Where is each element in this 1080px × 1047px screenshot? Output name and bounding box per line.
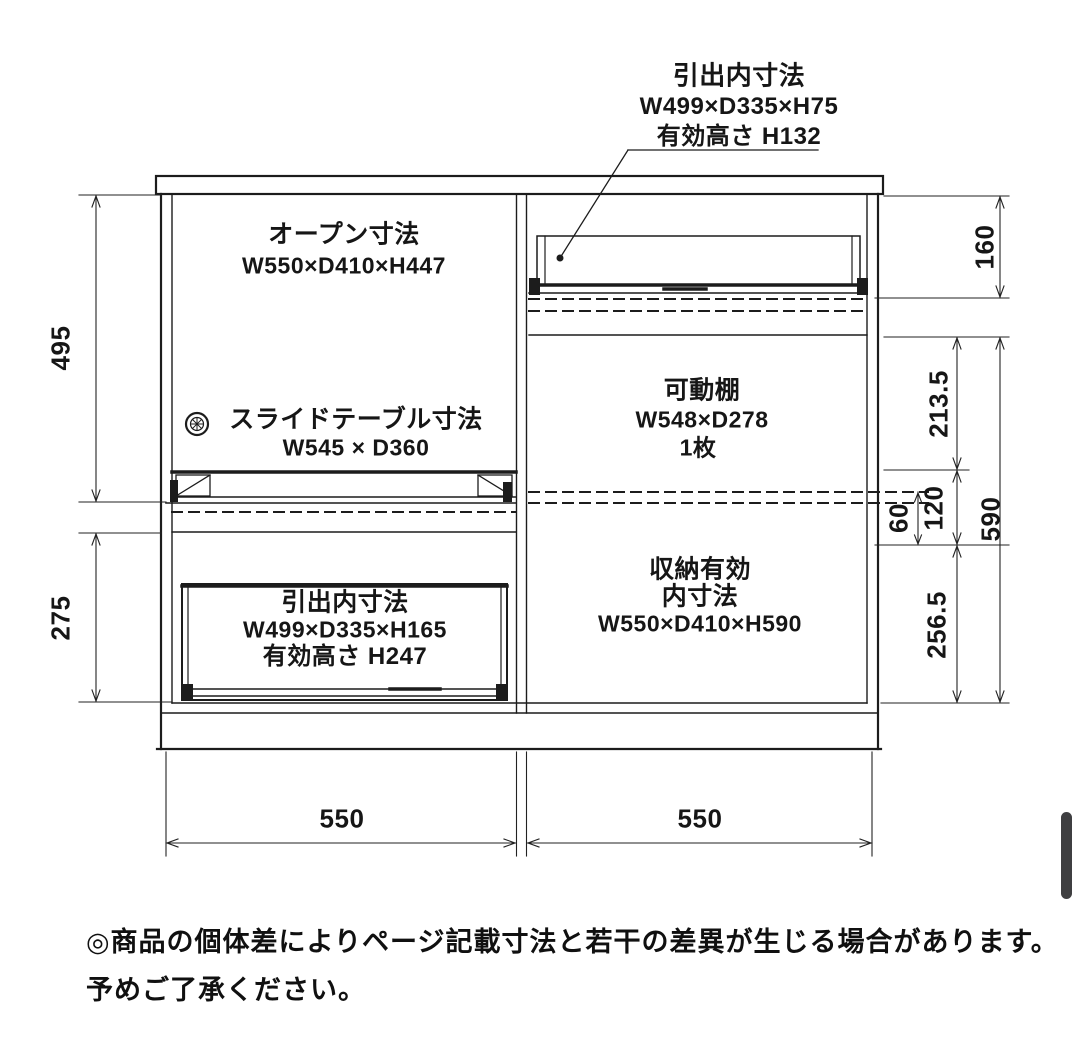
dim-590: 590 — [977, 497, 1006, 542]
open-section-size: W550×D410×H447 — [242, 253, 446, 278]
annotation-title: 引出内寸法 — [673, 62, 806, 91]
shelf-position-lines — [529, 492, 928, 503]
knob-icon — [186, 413, 208, 435]
dim-256-5: 256.5 — [923, 591, 952, 659]
dim-213-5: 213.5 — [925, 370, 954, 438]
disclaimer-line-1: ◎商品の個体差によりページ記載寸法と若干の差異が生じる場合があります。 — [86, 920, 1059, 959]
flap-drawer-drawing — [529, 236, 868, 335]
dimension-diagram-page: 引出内寸法 W499×D335×H75 有効高さ H132 オープン寸法 W55… — [0, 0, 1080, 1047]
slide-table-size: W545 × D360 — [283, 435, 430, 460]
scrollbar-thumb[interactable] — [1061, 812, 1072, 899]
dim-120: 120 — [920, 486, 949, 531]
open-section-title: オープン寸法 — [268, 221, 420, 249]
disclaimer-line-2: 予めご了承ください。 — [86, 968, 366, 1007]
shelf-count: 1枚 — [680, 435, 717, 460]
annotation-size: W499×D335×H75 — [640, 94, 839, 120]
drawer-note: 有効高さ H247 — [263, 644, 428, 670]
drawer-title: 引出内寸法 — [281, 589, 409, 617]
shelf-size: W548×D278 — [636, 407, 769, 432]
leader-line — [557, 150, 819, 262]
dim-275: 275 — [47, 596, 76, 641]
storage-title-1: 収納有効 — [649, 556, 751, 584]
dim-495: 495 — [47, 326, 76, 371]
slide-table-drawing — [166, 472, 516, 532]
dim-550-left: 550 — [320, 805, 365, 834]
slide-table-title: スライドテーブル寸法 — [229, 406, 483, 434]
storage-size: W550×D410×H590 — [598, 611, 802, 636]
annotation-note: 有効高さ H132 — [657, 124, 822, 150]
shelf-title: 可動棚 — [664, 377, 741, 405]
dim-160: 160 — [971, 225, 1000, 270]
drawer-size: W499×D335×H165 — [243, 617, 447, 642]
dim-550-right: 550 — [678, 805, 723, 834]
storage-title-2: 内寸法 — [662, 583, 739, 611]
dimension-lines — [79, 195, 1009, 856]
dim-60: 60 — [885, 503, 914, 533]
